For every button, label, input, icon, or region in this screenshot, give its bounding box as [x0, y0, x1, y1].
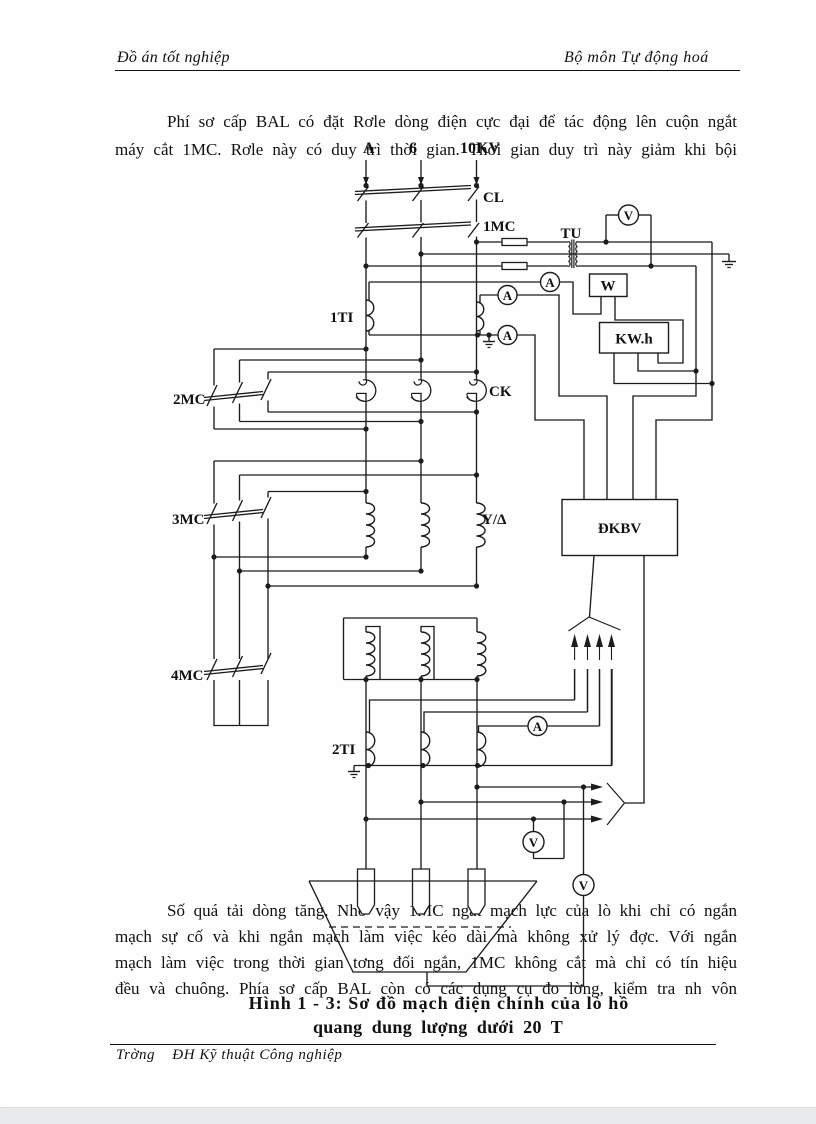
svg-text:V: V	[624, 208, 634, 223]
svg-text:CL: CL	[483, 190, 504, 206]
svg-text:2TI: 2TI	[332, 742, 356, 758]
svg-text:A: A	[503, 288, 513, 303]
svg-text:1TI: 1TI	[330, 310, 354, 326]
svg-text:A: A	[545, 275, 555, 290]
svg-text:KW.h: KW.h	[615, 332, 653, 348]
svg-text:3MC: 3MC	[172, 512, 205, 528]
svg-text:4MC: 4MC	[171, 668, 204, 684]
svg-text:1MC: 1MC	[483, 219, 516, 235]
svg-text:2MC: 2MC	[173, 392, 206, 408]
svg-text:TU: TU	[561, 226, 582, 242]
svg-text:W: W	[601, 279, 616, 295]
svg-text:A: A	[503, 328, 513, 343]
svg-text:Y/Δ: Y/Δ	[482, 512, 507, 528]
svg-text:CK: CK	[489, 384, 512, 400]
svg-text:V: V	[579, 878, 589, 893]
svg-text:ĐKBV: ĐKBV	[598, 521, 642, 537]
svg-text:A: A	[533, 719, 543, 734]
svg-text:V: V	[529, 835, 539, 850]
